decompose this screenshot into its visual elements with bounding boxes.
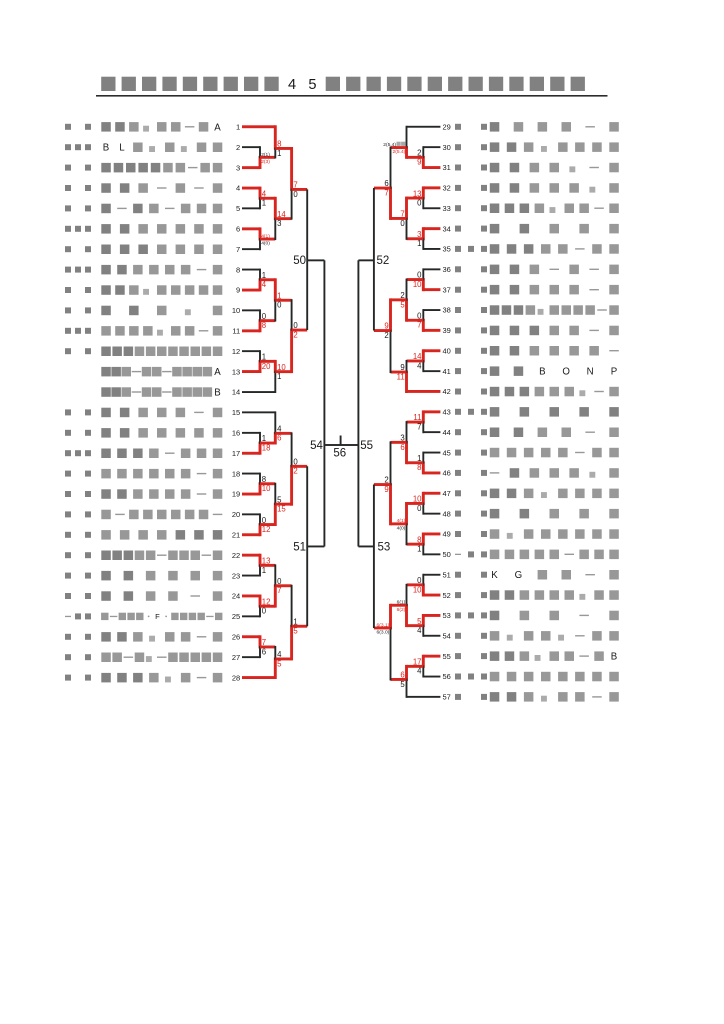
svg-text:35: 35	[443, 245, 451, 254]
svg-text:1: 1	[277, 291, 281, 300]
svg-text:B: B	[539, 367, 545, 378]
svg-text:52: 52	[377, 255, 390, 267]
svg-text:18: 18	[262, 443, 271, 452]
svg-text:47: 47	[443, 489, 451, 498]
svg-text:48: 48	[443, 509, 451, 518]
svg-text:1: 1	[262, 434, 266, 443]
svg-text:10: 10	[277, 363, 286, 372]
svg-text:0: 0	[262, 312, 267, 321]
svg-text:54: 54	[310, 440, 323, 452]
svg-text:3: 3	[417, 230, 421, 239]
svg-text:6(2): 6(2)	[397, 607, 406, 613]
svg-text:6: 6	[277, 434, 281, 443]
svg-text:4: 4	[417, 626, 422, 635]
svg-text:2: 2	[400, 291, 404, 300]
svg-text:46: 46	[443, 469, 451, 478]
svg-text:5: 5	[417, 617, 422, 626]
svg-text:0: 0	[262, 607, 267, 616]
svg-text:B: B	[611, 652, 617, 663]
svg-text:1: 1	[262, 271, 266, 280]
svg-text:44: 44	[443, 428, 451, 437]
svg-text:0: 0	[262, 516, 267, 525]
svg-text:51: 51	[293, 542, 306, 554]
svg-text:4: 4	[236, 184, 240, 193]
svg-text:6(3.0): 6(3.0)	[377, 630, 390, 636]
svg-text:8: 8	[417, 535, 421, 544]
svg-text:14: 14	[413, 352, 422, 361]
svg-text:N: N	[587, 367, 594, 378]
svg-text:0: 0	[400, 219, 405, 228]
svg-text:2: 2	[417, 149, 421, 158]
svg-text:12: 12	[232, 347, 240, 356]
svg-text:G: G	[515, 570, 523, 581]
svg-text:2(5.4): 2(5.4)	[393, 149, 406, 155]
svg-text:27: 27	[232, 653, 240, 662]
svg-text:45: 45	[443, 448, 451, 457]
svg-text:8: 8	[277, 140, 281, 149]
svg-text:52: 52	[443, 591, 451, 600]
svg-text:37: 37	[443, 285, 451, 294]
svg-text:17: 17	[413, 658, 422, 667]
svg-text:39: 39	[443, 326, 451, 335]
svg-text:12: 12	[262, 597, 271, 606]
svg-text:26: 26	[232, 633, 240, 642]
svg-text:L: L	[119, 143, 125, 154]
svg-text:20: 20	[262, 362, 271, 371]
svg-text:50: 50	[443, 550, 451, 559]
svg-text:9: 9	[384, 485, 388, 494]
svg-text:0: 0	[417, 199, 422, 208]
svg-text:7: 7	[384, 188, 388, 197]
svg-text:7: 7	[293, 181, 297, 190]
svg-text:10: 10	[413, 495, 422, 504]
svg-text:P: P	[611, 367, 617, 378]
svg-text:A: A	[214, 122, 221, 133]
svg-text:3: 3	[400, 434, 404, 443]
svg-text:1: 1	[293, 618, 297, 627]
svg-text:36: 36	[443, 265, 451, 274]
svg-text:1: 1	[262, 353, 266, 362]
svg-text:13: 13	[262, 557, 271, 566]
svg-text:10: 10	[413, 585, 422, 594]
svg-text:9: 9	[384, 322, 388, 331]
svg-text:0: 0	[417, 504, 422, 513]
svg-text:5: 5	[277, 659, 282, 668]
svg-text:1: 1	[236, 123, 240, 132]
svg-text:50: 50	[293, 255, 306, 267]
svg-text:2: 2	[384, 331, 388, 340]
svg-text:7: 7	[417, 321, 421, 330]
svg-text:0: 0	[293, 458, 298, 467]
svg-text:1: 1	[262, 566, 266, 575]
svg-text:0: 0	[417, 271, 422, 280]
svg-text:7: 7	[400, 210, 404, 219]
svg-text:9: 9	[236, 286, 240, 295]
svg-text:13: 13	[413, 189, 422, 198]
svg-text:43: 43	[443, 408, 451, 417]
svg-text:11: 11	[413, 413, 421, 422]
svg-text:17: 17	[232, 449, 240, 458]
svg-text:7: 7	[277, 586, 281, 595]
svg-text:7: 7	[236, 245, 240, 254]
svg-text:4: 4	[288, 77, 296, 93]
svg-text:0: 0	[277, 577, 282, 586]
svg-text:33: 33	[443, 204, 451, 213]
svg-text:10: 10	[413, 280, 422, 289]
svg-text:42: 42	[443, 387, 451, 396]
svg-text:18: 18	[232, 469, 240, 478]
svg-text:0: 0	[277, 301, 282, 310]
svg-text:24: 24	[232, 592, 240, 601]
svg-text:F: F	[155, 612, 160, 621]
svg-text:38: 38	[443, 306, 451, 315]
svg-text:53: 53	[378, 542, 391, 554]
svg-text:8: 8	[262, 321, 266, 330]
svg-text:9: 9	[400, 363, 404, 372]
svg-text:4(0): 4(0)	[261, 241, 270, 247]
svg-text:20: 20	[232, 510, 240, 519]
svg-text:25: 25	[232, 612, 240, 621]
svg-text:28: 28	[232, 673, 240, 682]
svg-text:9: 9	[417, 158, 421, 167]
svg-text:10: 10	[262, 484, 271, 493]
svg-text:6: 6	[236, 225, 240, 234]
svg-text:5: 5	[293, 627, 298, 636]
svg-text:55: 55	[443, 652, 451, 661]
svg-text:29: 29	[443, 123, 451, 132]
svg-text:4: 4	[262, 189, 267, 198]
svg-text:7: 7	[417, 422, 421, 431]
svg-text:1: 1	[277, 372, 281, 381]
svg-text:6: 6	[384, 179, 388, 188]
svg-text:0: 0	[417, 311, 422, 320]
svg-text:2: 2	[236, 143, 240, 152]
svg-text:32: 32	[443, 184, 451, 193]
svg-text:2(3): 2(3)	[261, 159, 270, 165]
svg-text:13: 13	[232, 367, 240, 376]
svg-text:2: 2	[293, 330, 297, 339]
svg-text:56: 56	[443, 672, 451, 681]
svg-text:5: 5	[400, 300, 405, 309]
svg-text:1: 1	[277, 149, 281, 158]
svg-text:10: 10	[232, 306, 240, 315]
svg-text:A: A	[214, 367, 221, 378]
svg-text:23: 23	[232, 571, 240, 580]
svg-text:2: 2	[384, 476, 388, 485]
svg-text:57: 57	[443, 693, 451, 702]
svg-text:7: 7	[262, 638, 266, 647]
svg-text:12: 12	[262, 525, 271, 534]
svg-text:4(1): 4(1)	[261, 233, 270, 239]
svg-text:19: 19	[232, 490, 240, 499]
svg-text:8: 8	[236, 265, 240, 274]
svg-text:30: 30	[443, 143, 451, 152]
svg-text:B: B	[214, 388, 220, 399]
svg-text:5: 5	[277, 495, 282, 504]
svg-text:0: 0	[417, 576, 422, 585]
svg-text:6: 6	[262, 647, 266, 656]
svg-text:5: 5	[236, 204, 240, 213]
svg-text:1: 1	[417, 545, 421, 554]
svg-text:14: 14	[232, 388, 240, 397]
svg-text:15: 15	[232, 408, 240, 417]
svg-text:51: 51	[443, 570, 451, 579]
svg-text:2(1): 2(1)	[261, 152, 270, 158]
svg-text:0: 0	[293, 190, 298, 199]
svg-text:4: 4	[277, 425, 282, 434]
svg-text:4(0): 4(0)	[397, 525, 406, 531]
svg-text:4: 4	[262, 280, 267, 289]
svg-text:4(1): 4(1)	[397, 518, 406, 524]
svg-text:5: 5	[308, 77, 316, 93]
svg-text:5: 5	[400, 680, 405, 689]
svg-text:O: O	[562, 367, 570, 378]
svg-text:0: 0	[293, 321, 298, 330]
svg-text:6: 6	[400, 671, 404, 680]
svg-text:14: 14	[277, 210, 286, 219]
svg-text:B: B	[103, 143, 109, 154]
svg-text:53: 53	[443, 611, 451, 620]
svg-text:6(1): 6(1)	[397, 600, 406, 606]
svg-text:54: 54	[443, 632, 451, 641]
svg-text:34: 34	[443, 224, 451, 233]
svg-text:16: 16	[232, 429, 240, 438]
svg-text:49: 49	[443, 530, 451, 539]
svg-text:3: 3	[277, 219, 281, 228]
svg-text:2: 2	[293, 467, 297, 476]
svg-text:41: 41	[443, 367, 451, 376]
svg-text:8: 8	[417, 463, 421, 472]
svg-text:3: 3	[236, 163, 240, 172]
svg-text:21: 21	[232, 531, 240, 540]
svg-text:56: 56	[333, 448, 346, 460]
svg-text:1: 1	[417, 454, 421, 463]
svg-text:31: 31	[443, 163, 451, 172]
svg-text:1: 1	[262, 199, 266, 208]
svg-text:4: 4	[417, 361, 422, 370]
svg-text:40: 40	[443, 347, 451, 356]
svg-text:11: 11	[397, 372, 405, 381]
svg-text:6: 6	[400, 443, 404, 452]
svg-text:11: 11	[232, 327, 240, 336]
svg-text:55: 55	[360, 440, 373, 452]
svg-text:4: 4	[277, 650, 282, 659]
svg-text:4: 4	[417, 667, 422, 676]
svg-text:22: 22	[232, 551, 240, 560]
svg-text:1: 1	[417, 239, 421, 248]
svg-text:15: 15	[277, 505, 286, 514]
svg-text:K: K	[491, 570, 498, 581]
svg-text:8: 8	[262, 475, 266, 484]
svg-text:6(3.1): 6(3.1)	[377, 622, 390, 628]
